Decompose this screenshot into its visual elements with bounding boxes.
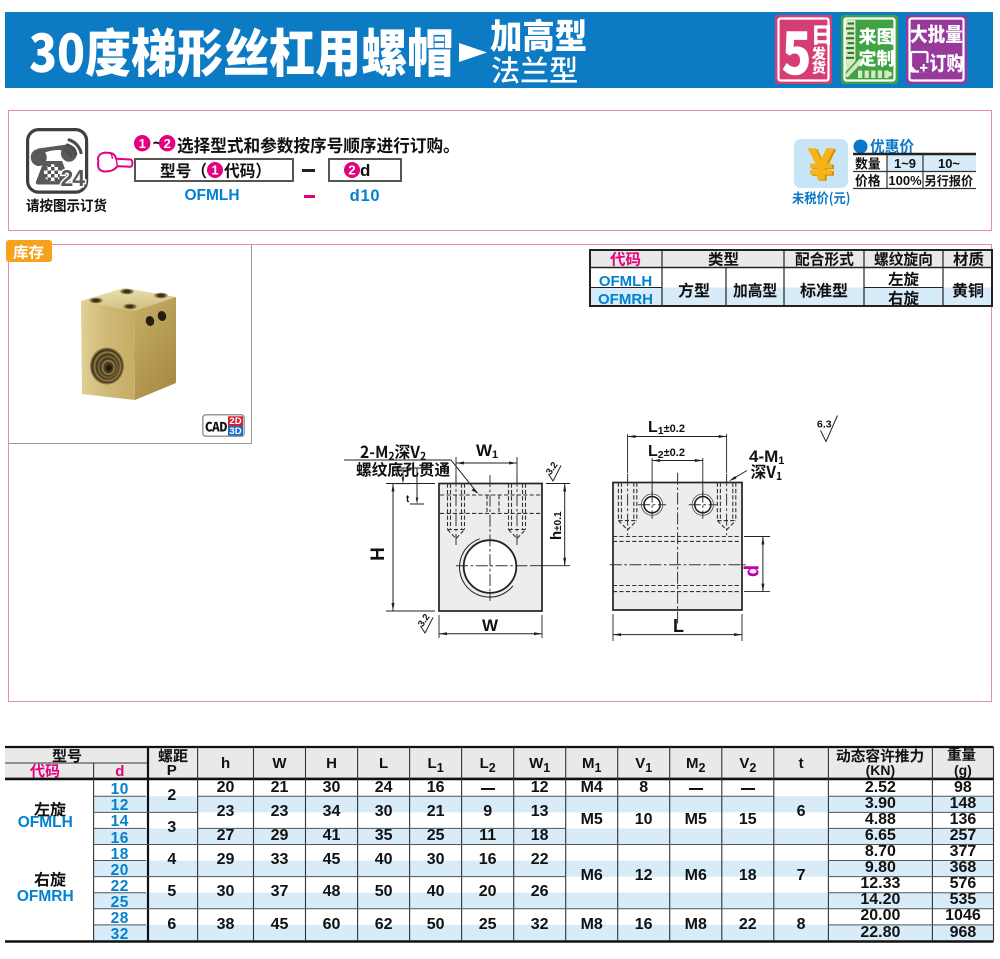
svg-text:L2±0.2: L2±0.2 [648, 443, 685, 461]
svg-text:L: L [673, 616, 684, 636]
svg-text:d: d [742, 565, 764, 577]
svg-text:2: 2 [164, 136, 171, 151]
svg-text:W1: W1 [476, 441, 498, 461]
svg-text:H: H [368, 547, 389, 561]
svg-text:100%: 100% [888, 173, 922, 188]
svg-text:3.2: 3.2 [416, 612, 433, 629]
svg-text:1: 1 [211, 163, 218, 178]
svg-text:4-M1: 4-M1 [749, 447, 784, 467]
svg-text:3.2: 3.2 [544, 460, 561, 477]
svg-text:t: t [406, 494, 410, 505]
svg-text:6.3: 6.3 [817, 419, 832, 431]
svg-text:¥: ¥ [809, 140, 834, 188]
svg-text:h±0.1: h±0.1 [548, 511, 565, 540]
svg-text:W: W [482, 616, 499, 635]
svg-text:24: 24 [61, 165, 86, 191]
svg-text:10~: 10~ [938, 156, 960, 171]
svg-text:L1±0.2: L1±0.2 [648, 419, 685, 437]
svg-text:2: 2 [348, 163, 355, 178]
svg-text:1: 1 [138, 136, 145, 151]
svg-text:3D: 3D [229, 426, 241, 437]
svg-text:1~9: 1~9 [894, 156, 916, 171]
